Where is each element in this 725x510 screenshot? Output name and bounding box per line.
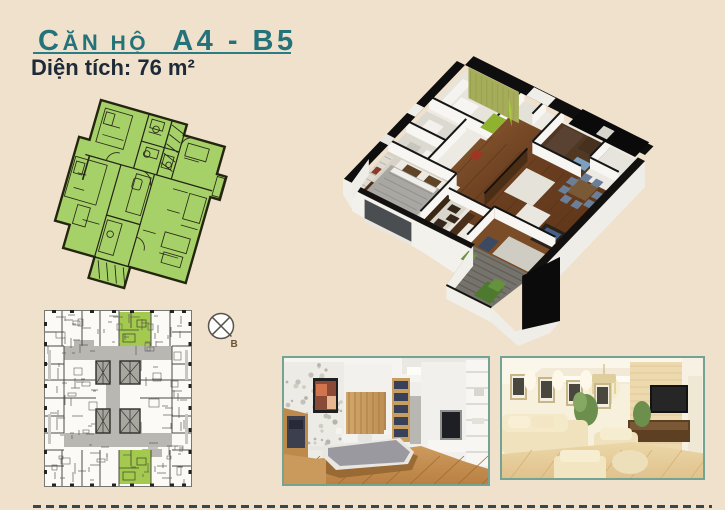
svg-text:B: B [231, 339, 238, 350]
